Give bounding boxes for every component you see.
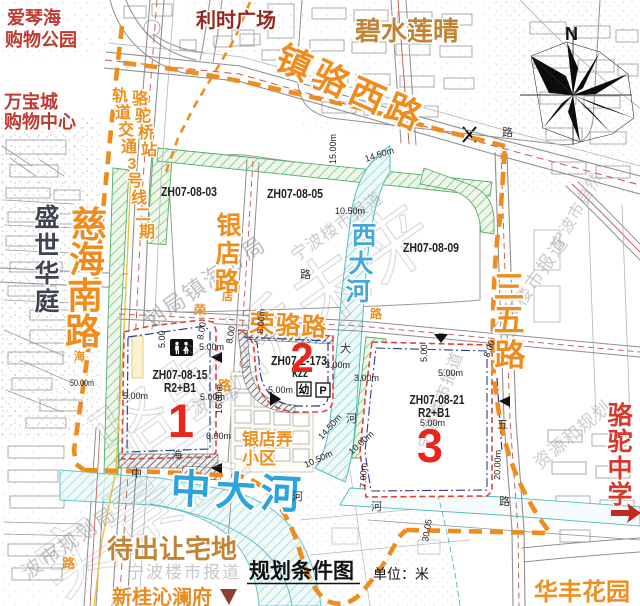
svg-text:10.50m: 10.50m	[335, 206, 365, 216]
svg-text:骆: 骆	[132, 89, 149, 108]
svg-text:盛: 盛	[34, 203, 59, 232]
svg-text:50.00m: 50.00m	[70, 378, 94, 388]
svg-text:五: 五	[494, 303, 525, 338]
svg-text:路: 路	[62, 556, 76, 571]
svg-text:路: 路	[300, 268, 311, 281]
svg-text:宁波楼市报道: 宁波楼市报道	[127, 563, 241, 582]
svg-text:交: 交	[118, 120, 134, 139]
svg-text:银店弄: 银店弄	[242, 429, 293, 449]
svg-text:驼: 驼	[135, 106, 151, 125]
svg-text:号: 号	[127, 172, 143, 190]
svg-text:二: 二	[135, 207, 151, 224]
svg-text:ZH07-08-05: ZH07-08-05	[267, 186, 323, 201]
svg-text:大: 大	[348, 250, 373, 278]
svg-text:购物公园: 购物公园	[5, 29, 77, 50]
svg-text:河: 河	[346, 412, 357, 425]
svg-text:河: 河	[292, 490, 303, 503]
svg-text:新桂沁澜府: 新桂沁澜府	[112, 585, 212, 606]
svg-text:海: 海	[74, 349, 85, 363]
svg-text:5.00m: 5.00m	[199, 342, 224, 352]
svg-text:店: 店	[222, 289, 233, 303]
svg-text:5.00m: 5.00m	[438, 368, 463, 378]
svg-text:西: 西	[351, 222, 376, 250]
svg-text:购物中心: 购物中心	[4, 111, 76, 132]
svg-text:万宝城: 万宝城	[3, 91, 58, 112]
svg-text:2: 2	[290, 334, 313, 381]
svg-text:3.00m: 3.00m	[325, 360, 350, 370]
svg-text:规划条件图: 规划条件图	[249, 559, 354, 583]
svg-text:线: 线	[131, 188, 147, 207]
svg-text:中: 中	[131, 467, 142, 480]
svg-text:海: 海	[172, 449, 182, 462]
svg-text:20.00m: 20.00m	[492, 450, 503, 480]
svg-text:轨: 轨	[112, 86, 128, 105]
svg-text:小区: 小区	[242, 449, 276, 468]
svg-text:荣: 荣	[193, 302, 207, 317]
svg-text:骆: 骆	[607, 401, 633, 430]
svg-text:海: 海	[69, 239, 105, 280]
svg-text:5.00: 5.00	[419, 344, 429, 362]
svg-text:驼: 驼	[607, 427, 632, 456]
svg-text:7.00m: 7.00m	[358, 463, 369, 488]
svg-text:华丰花园: 华丰花园	[534, 578, 630, 606]
svg-text:15.00m: 15.00m	[328, 134, 338, 164]
svg-text:河: 河	[345, 278, 370, 306]
svg-text:1: 1	[168, 394, 194, 447]
svg-text:幼: 幼	[299, 382, 310, 396]
svg-text:河: 河	[371, 500, 382, 513]
svg-text:路: 路	[65, 311, 102, 352]
svg-text:N: N	[565, 24, 578, 44]
svg-text:路: 路	[499, 495, 510, 508]
svg-text:ZH07-08-03: ZH07-08-03	[161, 184, 217, 199]
svg-text:世: 世	[34, 232, 59, 260]
svg-text:ZH07-08-09: ZH07-08-09	[403, 240, 459, 255]
svg-text:道: 道	[115, 103, 131, 122]
svg-text:华: 华	[34, 259, 59, 288]
svg-text:P: P	[319, 385, 326, 397]
svg-text:R2+B1: R2+B1	[164, 380, 196, 395]
svg-text:路: 路	[495, 338, 527, 373]
svg-text:5.00: 5.00	[157, 330, 167, 348]
svg-text:店: 店	[215, 240, 240, 268]
svg-text:利时广场: 利时广场	[196, 8, 276, 32]
svg-text:6.00m: 6.00m	[206, 431, 231, 441]
svg-text:南: 南	[67, 275, 103, 316]
svg-text:庭: 庭	[34, 287, 59, 316]
svg-text:大: 大	[340, 341, 351, 355]
svg-text:路: 路	[370, 306, 383, 321]
svg-text:五: 五	[497, 419, 508, 431]
svg-text:5.00m: 5.00m	[420, 418, 445, 428]
svg-text:路: 路	[502, 126, 513, 139]
svg-text:碧水莲晴: 碧水莲晴	[354, 16, 459, 46]
svg-text:三: 三	[494, 270, 525, 305]
svg-text:中: 中	[607, 455, 632, 483]
svg-text:期: 期	[139, 222, 155, 241]
svg-text:爱琴海: 爱琴海	[7, 7, 61, 28]
svg-text:银: 银	[216, 212, 242, 240]
svg-text:桥: 桥	[138, 123, 155, 142]
svg-text:3: 3	[128, 156, 137, 173]
svg-text:3.00m: 3.00m	[354, 373, 379, 383]
svg-text:待出让宅地: 待出让宅地	[107, 534, 237, 564]
svg-text:5.00m: 5.00m	[268, 385, 293, 395]
svg-text:站: 站	[141, 140, 157, 159]
svg-text:16.00m: 16.00m	[214, 384, 224, 414]
svg-text:通: 通	[121, 138, 137, 156]
svg-text:5.00m: 5.00m	[123, 391, 148, 401]
svg-text:单位：米: 单位：米	[373, 566, 429, 582]
svg-text:中大河: 中大河	[170, 467, 307, 518]
